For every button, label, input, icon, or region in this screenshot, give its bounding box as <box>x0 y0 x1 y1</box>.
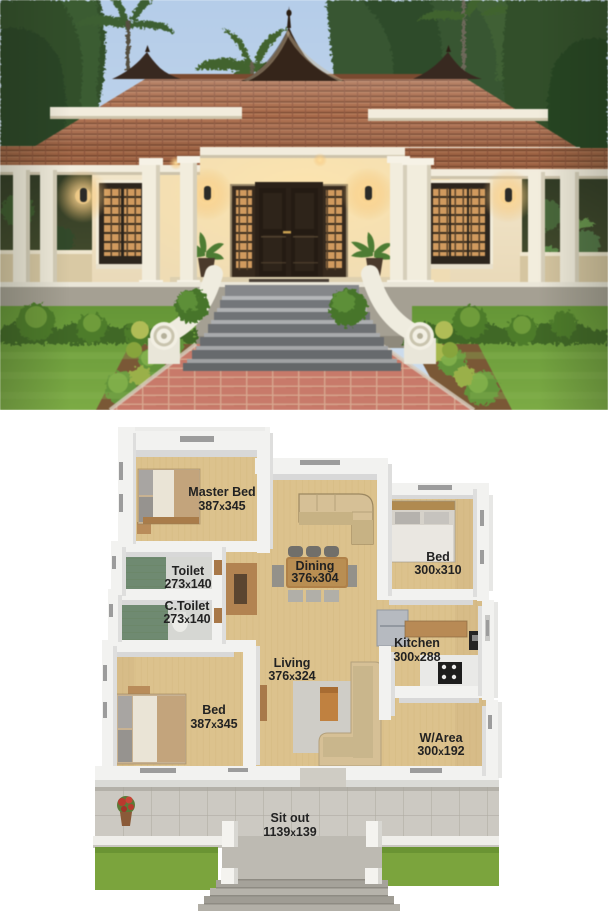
svg-text:387x345: 387x345 <box>190 717 237 731</box>
svg-text:376x324: 376x324 <box>268 669 315 683</box>
svg-text:Bed: Bed <box>426 550 450 564</box>
svg-text:Bed: Bed <box>202 703 226 717</box>
svg-text:387x345: 387x345 <box>198 499 245 513</box>
svg-text:376x304: 376x304 <box>291 571 338 585</box>
svg-text:C.Toilet: C.Toilet <box>165 599 211 613</box>
svg-text:273x140: 273x140 <box>163 612 210 626</box>
svg-text:300x310: 300x310 <box>414 563 461 577</box>
svg-text:273x140: 273x140 <box>164 577 211 591</box>
svg-text:300x288: 300x288 <box>393 650 440 664</box>
svg-text:300x192: 300x192 <box>417 744 464 758</box>
svg-text:Toilet: Toilet <box>172 564 205 578</box>
svg-text:W/Area: W/Area <box>419 731 463 745</box>
svg-text:Master Bed: Master Bed <box>188 485 255 499</box>
svg-text:1139x139: 1139x139 <box>263 825 317 839</box>
svg-text:Living: Living <box>274 656 311 670</box>
svg-text:Sit out: Sit out <box>271 811 311 825</box>
svg-text:Kitchen: Kitchen <box>394 636 440 650</box>
